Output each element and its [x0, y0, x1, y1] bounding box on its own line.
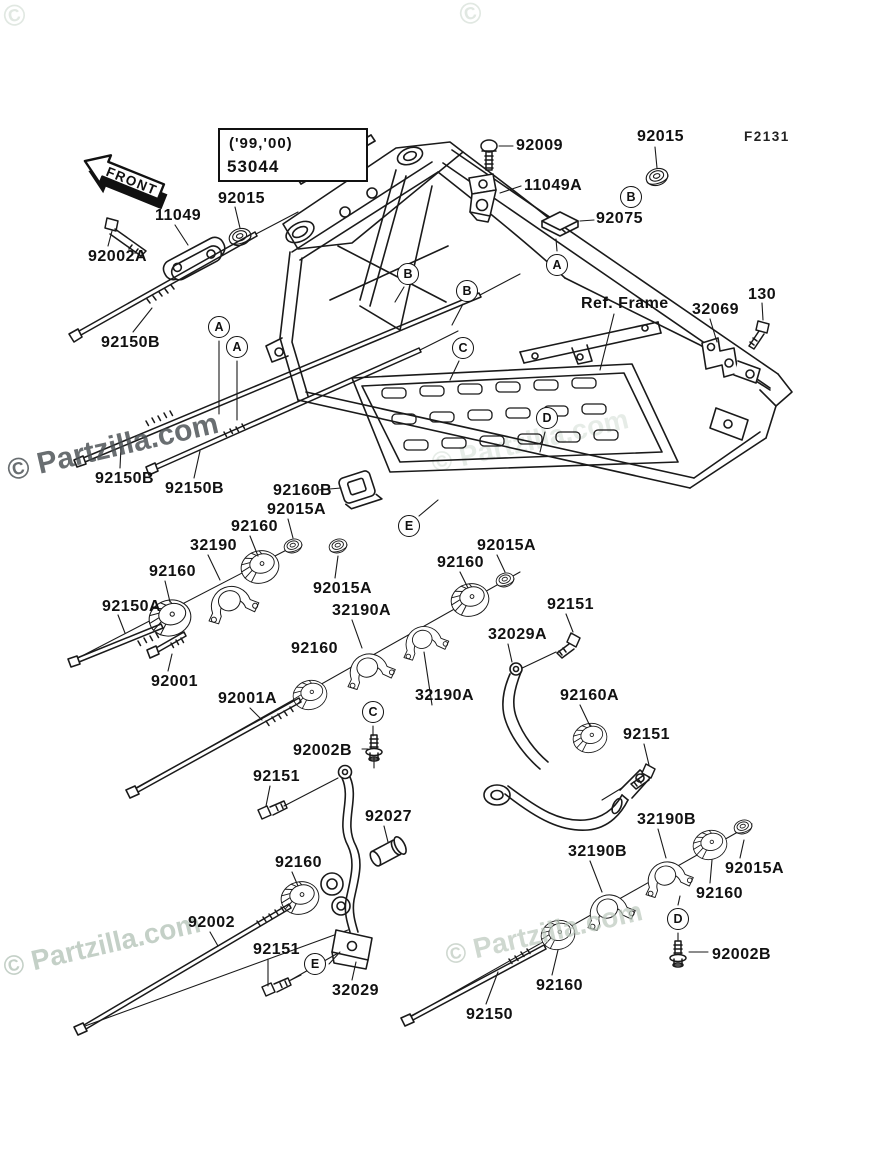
- part-label-92160A: 92160A: [560, 687, 619, 704]
- part-label-32190B-2: 32190B: [568, 843, 627, 860]
- screw-92009: [481, 140, 497, 170]
- part-label-32190B-1: 32190B: [637, 811, 696, 828]
- part-label-92015-tr: 92015: [637, 128, 684, 145]
- callout-C-1: C: [452, 337, 474, 359]
- part-label-92151-3: 92151: [253, 768, 300, 785]
- note-box-years: ('99,'00): [229, 135, 293, 152]
- part-label-92027: 92027: [365, 808, 412, 825]
- part-label-32029: 32029: [332, 982, 379, 999]
- callout-E-1: E: [398, 515, 420, 537]
- figure-code: F2131: [744, 129, 790, 144]
- note-box-53044: ('99,'00) 53044: [218, 128, 368, 182]
- ref-frame-label: Ref. Frame: [581, 295, 669, 313]
- screw-92151-3: [258, 801, 287, 819]
- part-label-32190A-1: 32190A: [332, 602, 391, 619]
- part-label-92160-3: 92160: [437, 554, 484, 571]
- callout-A-2: A: [208, 316, 230, 338]
- bolt-92002: [74, 904, 291, 1035]
- part-label-32029A: 32029A: [488, 626, 547, 643]
- bracket-11049: [160, 234, 229, 285]
- frame-floor-slots: [382, 378, 618, 450]
- part-label-92150A: 92150A: [102, 598, 161, 615]
- callout-C-2: C: [362, 701, 384, 723]
- part-label-92151-2: 92151: [623, 726, 670, 743]
- part-label-92160-2: 92160: [149, 563, 196, 580]
- damper-92160b: [338, 468, 382, 510]
- part-label-32069: 32069: [692, 301, 739, 318]
- screw-92151-1: [557, 633, 580, 658]
- note-box-part-number: 53044: [227, 157, 279, 177]
- part-label-92015A-2: 92015A: [313, 580, 372, 597]
- bolt-92150b-2: [74, 293, 481, 467]
- part-label-92009: 92009: [516, 137, 563, 154]
- screw-92002b-1: [366, 735, 382, 761]
- part-label-92160-6: 92160: [696, 885, 743, 902]
- callout-A-3: A: [226, 336, 248, 358]
- diagram-line-art: FRONT: [0, 0, 894, 1170]
- bracket-32069: [702, 338, 760, 383]
- part-label-92160-5: 92160: [275, 854, 322, 871]
- parts-diagram-page: © © © Partzilla.com: [0, 0, 894, 1170]
- part-label-92001: 92001: [151, 673, 198, 690]
- part-label-92150: 92150: [466, 1006, 513, 1023]
- part-label-11049: 11049: [155, 207, 201, 224]
- callout-D-1: D: [536, 407, 558, 429]
- part-label-92160B: 92160B: [273, 482, 332, 499]
- bolt-92150b-3: [146, 348, 421, 475]
- part-label-92160-1: 92160: [231, 518, 278, 535]
- callout-B-2: B: [397, 263, 419, 285]
- front-arrow: FRONT: [76, 147, 173, 216]
- part-label-92150B-3: 92150B: [165, 480, 224, 497]
- part-label-92160-7: 92160: [536, 977, 583, 994]
- screw-92002b-2: [670, 941, 686, 967]
- callout-B-1: B: [620, 186, 642, 208]
- part-label-92001A: 92001A: [218, 690, 277, 707]
- part-label-92075: 92075: [596, 210, 643, 227]
- part-label-32190A-2: 32190A: [415, 687, 474, 704]
- stay-32029: [321, 766, 372, 970]
- part-label-32190: 32190: [190, 537, 237, 554]
- part-label-92002B-1: 92002B: [293, 742, 352, 759]
- screw-92151-4: [262, 978, 291, 996]
- part-label-92015A-4: 92015A: [725, 860, 784, 877]
- bolt-92150a: [68, 624, 163, 667]
- clamp-32190: [200, 578, 261, 627]
- part-label-92150B-2: 92150B: [95, 470, 154, 487]
- part-label-92151-4: 92151: [253, 941, 300, 958]
- callout-B-3: B: [456, 280, 478, 302]
- screw-130: [749, 321, 769, 349]
- callout-E-2: E: [304, 953, 326, 975]
- part-label-92015A-3: 92015A: [477, 537, 536, 554]
- part-label-92002A: 92002A: [88, 248, 147, 265]
- part-label-92151-1: 92151: [547, 596, 594, 613]
- part-label-92150B-1: 92150B: [101, 334, 160, 351]
- part-label-92002: 92002: [188, 914, 235, 931]
- part-label-92015A-1: 92015A: [267, 501, 326, 518]
- part-label-92015-tl: 92015: [218, 190, 265, 207]
- callout-D-2: D: [667, 908, 689, 930]
- part-label-92160-4: 92160: [291, 640, 338, 657]
- callout-A-1: A: [546, 254, 568, 276]
- part-label-92002B-2: 92002B: [712, 946, 771, 963]
- part-label-11049A: 11049A: [524, 177, 582, 194]
- part-label-130: 130: [748, 286, 776, 303]
